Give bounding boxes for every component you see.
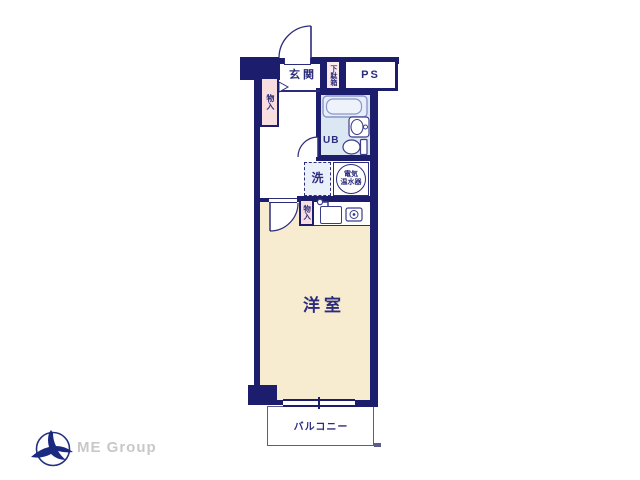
hall-door-arc-icon [296,135,320,159]
balcony-foot [374,443,381,447]
shoe-cabinet-label: 下駄箱 [329,65,337,86]
water-heater-circle: 電気 温水器 [336,164,366,194]
unit-bath-label: UB [323,135,339,146]
water-heater-label-2: 温水器 [341,179,362,187]
bird-logo-icon [28,427,80,473]
washer-box: 洗 [304,162,331,196]
storage-upper-box: 物入 [260,77,279,127]
room-door-arc-icon [268,201,300,233]
washer-label: 洗 [311,172,323,185]
storage-lower-label: 物入 [302,205,310,220]
bottom-right-pillar [355,400,374,407]
shoe-cabinet-box: 下駄箱 [326,61,340,89]
storage-upper-label: 物入 [265,94,274,110]
storage-lower-box: 物入 [299,199,314,226]
basin-icon [348,116,370,138]
stove-icon [345,207,363,222]
kitchen-sink-icon [320,206,342,224]
western-room-label: 洋室 [292,297,356,316]
right-wall [370,95,378,407]
logo-text: ME Group [77,440,157,457]
step-marker-icon [278,81,290,93]
entrance-door-arc-icon [277,24,314,60]
pipe-space-label: PS [361,69,380,81]
toilet-icon [341,138,369,156]
genkan-label: 玄関 [289,69,317,81]
balcony-label: バルコニー [288,422,354,433]
bottom-left-pillar [248,385,277,405]
pipe-space-box: PS [343,59,398,91]
water-heater-label-1: 電気 [344,171,358,179]
window-center-tick [318,397,320,409]
floor-plan-canvas: バルコニー 物入 下駄箱 PS 洗 電気 温水器 物入 玄関 UB 洋 [0,0,640,480]
